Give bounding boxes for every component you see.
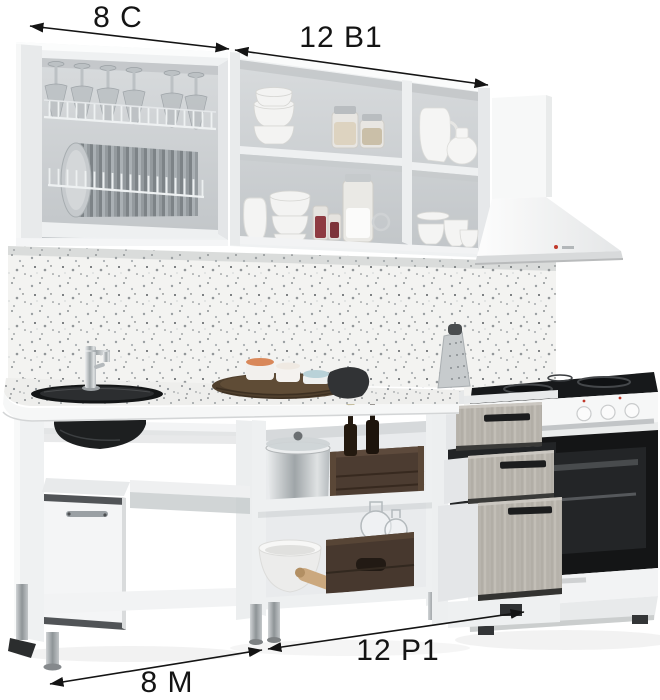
wall-cabinet-left — [16, 42, 228, 246]
metal-leg — [268, 602, 280, 640]
drawer-2 — [468, 450, 554, 504]
cup — [418, 224, 444, 244]
burner — [578, 377, 630, 387]
drawer-side-box — [438, 502, 478, 602]
stove-foot — [632, 615, 648, 624]
kitchen-scene: 8 С 12 В1 8 М 12 Р1 — [0, 0, 660, 700]
knob — [577, 407, 591, 421]
stove-foot — [478, 626, 494, 635]
hood-control-strip — [562, 246, 574, 249]
metal-leg — [250, 604, 262, 642]
dimension-label-base-right: 12 Р1 — [356, 634, 439, 667]
stock-pot — [266, 432, 330, 504]
big-jar-contents — [346, 208, 370, 238]
hood-duct — [492, 95, 546, 199]
jar-contents — [334, 122, 356, 145]
big-jar-lid — [345, 174, 371, 182]
leg-foot — [44, 664, 62, 671]
wine-crate-bottom — [326, 532, 414, 594]
cabinet-left-frame — [230, 52, 240, 246]
jar-contents — [362, 128, 382, 145]
countertop-end — [459, 390, 464, 404]
cabinet-top-face — [42, 478, 130, 496]
bowl-stack-bottom — [270, 191, 310, 242]
wall-cabinet-middle — [230, 50, 490, 258]
dark-cloth — [327, 367, 369, 399]
hood-indicator-light — [554, 245, 558, 249]
dish-rack-plates — [48, 143, 204, 217]
jar-lid — [362, 114, 382, 121]
vertical-divider — [402, 80, 412, 246]
dimension-label-wall-middle: 12 В1 — [299, 21, 382, 54]
dimension-label-base-left: 8 М — [140, 666, 193, 699]
leg-foot-black — [8, 638, 36, 658]
drawer-3 — [478, 497, 562, 601]
cup — [460, 230, 478, 247]
drawer-1 — [456, 402, 542, 451]
base-cabinet-left — [8, 416, 252, 671]
berry-jar-contents — [330, 222, 339, 238]
metal-leg — [46, 632, 59, 666]
left-stile — [252, 420, 266, 616]
cabinet-left-edge — [16, 44, 21, 246]
knob — [601, 405, 615, 419]
door-handle — [66, 511, 108, 517]
hood-duct-side — [546, 95, 552, 197]
faucet-nozzle — [103, 352, 110, 362]
lid-knob — [294, 432, 303, 441]
wine-bottle — [366, 420, 379, 454]
jar-lid — [334, 106, 356, 114]
grater-handle — [448, 324, 462, 335]
drawer-side-box — [444, 457, 472, 504]
wine-bottle — [344, 424, 357, 456]
kitchen-product-photo: 8 С 12 В1 8 М 12 Р1 — [0, 0, 660, 700]
pitcher — [420, 108, 451, 162]
berry-jar-contents — [315, 216, 326, 238]
knob — [625, 404, 639, 418]
jug-neck — [456, 128, 468, 138]
range-hood — [475, 95, 623, 265]
dimension-label-wall-left: 8 С — [93, 1, 143, 34]
metal-leg — [16, 584, 28, 640]
bowl-stack-top — [254, 88, 294, 145]
small-pitcher — [244, 198, 267, 239]
jug — [447, 136, 477, 164]
cabinet-right-frame — [218, 60, 228, 240]
right-stile — [236, 420, 252, 620]
hood-canopy — [477, 197, 621, 256]
